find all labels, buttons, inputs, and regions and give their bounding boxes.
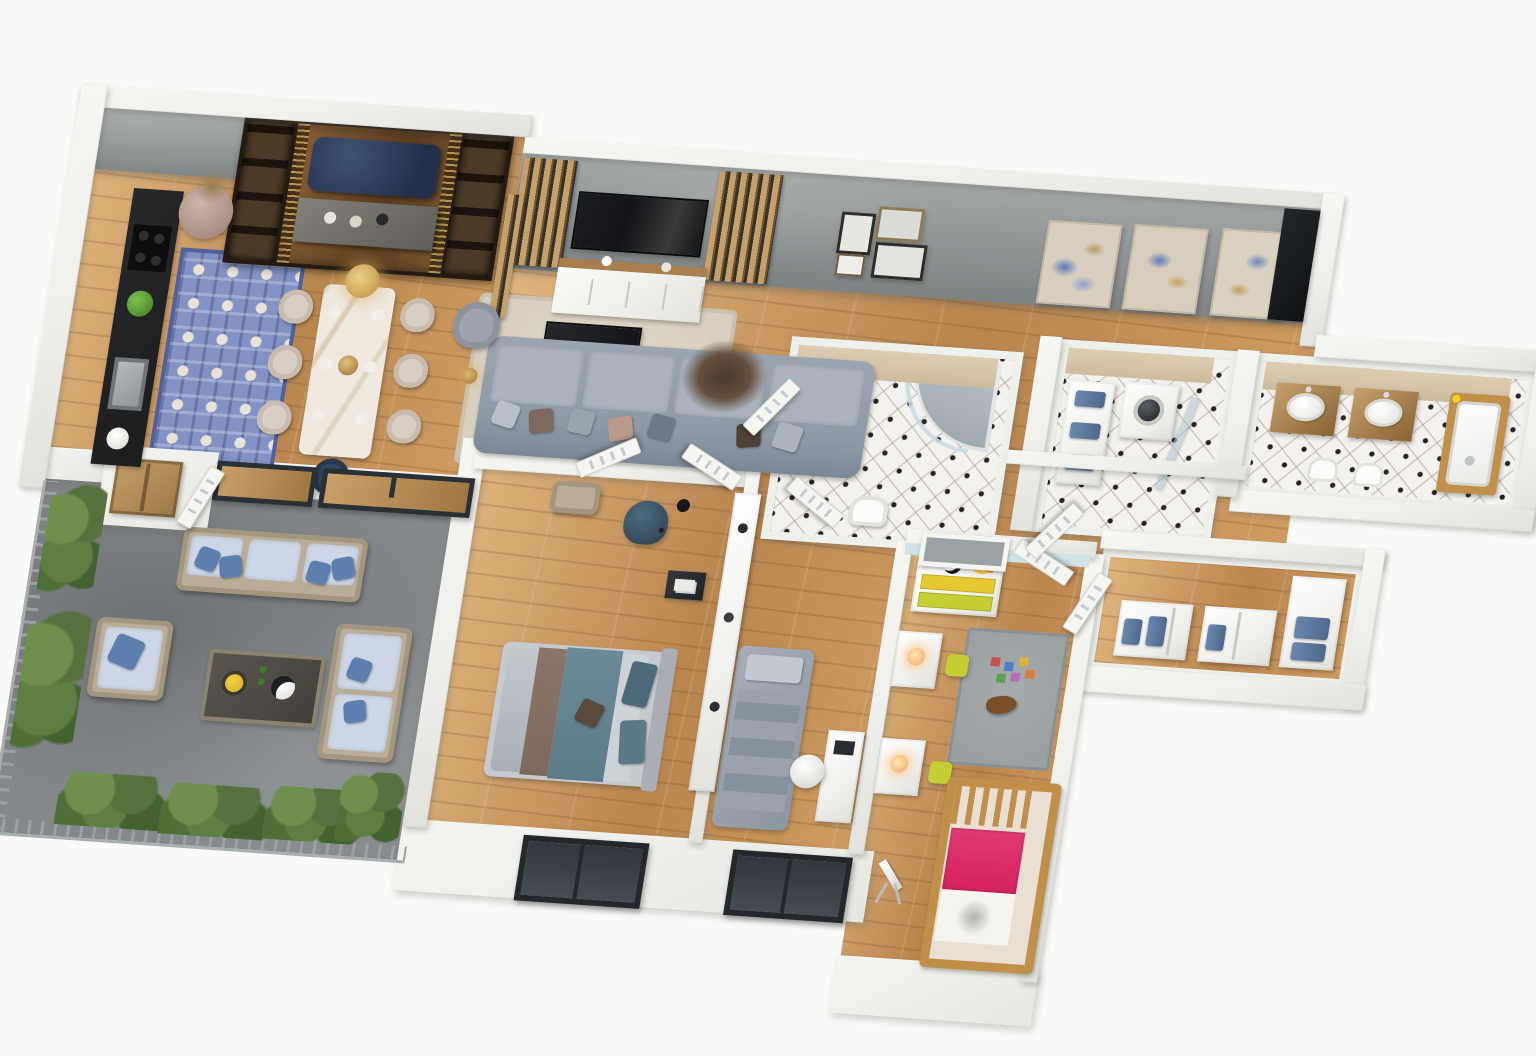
bathtub: [1436, 392, 1512, 495]
laundry-stone-wall: [1065, 348, 1215, 384]
blue-pillow: [343, 699, 366, 724]
master-bathroom: [1238, 353, 1536, 513]
wood-vanity: [1270, 382, 1342, 436]
drawer-yellow: [920, 574, 996, 594]
floor-plan-root: [0, 60, 1536, 1034]
sofa-cushion: [244, 539, 302, 582]
folded-towel: [1145, 616, 1168, 647]
photo-frame: [870, 242, 928, 281]
greens-bowl: [125, 290, 155, 318]
sofa-pillow: [771, 421, 805, 453]
blue-pillow: [219, 554, 242, 579]
bed-pillow: [618, 720, 647, 765]
fruit-bowl: [219, 669, 249, 697]
rocking-horse: [986, 694, 1017, 716]
walk-in-closet: [1085, 549, 1366, 688]
washing-machine: [1117, 382, 1180, 441]
sofa-seat: [581, 350, 676, 414]
master-double-bed: [483, 641, 676, 788]
faucet: [1305, 386, 1312, 392]
kitchen-corner-concrete-wall: [93, 106, 248, 180]
navy-bench: [306, 136, 442, 198]
blue-pillow: [331, 556, 356, 582]
lime-stool: [944, 654, 969, 677]
outdoor-armchair: [86, 617, 174, 702]
serving-tray: [269, 675, 297, 700]
corner-shrub: [333, 770, 408, 846]
media-sideboard: [551, 258, 707, 323]
foyer-media-wall: [222, 116, 515, 282]
sofa-pillow: [646, 413, 677, 442]
kids-desk: [873, 738, 926, 797]
white-bowl: [105, 427, 130, 450]
telescope: [870, 855, 918, 907]
kids-interior-window: [918, 532, 1011, 572]
closet-module: [1197, 606, 1278, 667]
folded-towel: [1121, 618, 1143, 645]
daybed-pillow: [744, 654, 804, 684]
photo-frame: [836, 211, 877, 255]
decor-vase: [601, 256, 613, 267]
hedge-plants: [54, 770, 172, 831]
pink-blanket: [942, 828, 1026, 895]
folded-towel: [1205, 624, 1227, 651]
wicker-bench: [549, 480, 602, 515]
shelf-divider: [1166, 607, 1177, 655]
folded-towel: [1069, 422, 1101, 440]
sofa-pillow: [529, 408, 554, 434]
outdoor-sofa: [175, 526, 369, 602]
kids-play-rug: [947, 627, 1070, 771]
magazines: [673, 579, 695, 592]
yellow-dresser: [910, 566, 1003, 618]
folded-towel: [1074, 390, 1106, 408]
sofa-pillow: [490, 399, 522, 429]
desk-lamp: [889, 754, 910, 773]
folded-towel: [1290, 642, 1327, 662]
abstract-painting: [1122, 224, 1209, 314]
corner-wardrobe: [1279, 576, 1347, 671]
wall-tv: [570, 191, 709, 258]
table-centerpiece: [337, 355, 360, 376]
dried-plant: [192, 168, 231, 204]
burner: [138, 230, 150, 241]
outdoor-coffee-table: [199, 648, 326, 727]
desk-monitor: [833, 740, 855, 755]
washer-door: [1132, 394, 1167, 426]
sliding-glass-door: [212, 461, 318, 508]
dresser-decor: [737, 523, 749, 534]
vessel-sink: [1285, 392, 1327, 422]
toy-blocks: [990, 657, 1000, 667]
wood-vanity: [1347, 388, 1419, 442]
side-table: [664, 570, 706, 600]
bench-divider: [139, 464, 151, 512]
drink-bottles: [259, 666, 267, 673]
desk-lamp: [906, 647, 927, 666]
sofa-seat: [490, 344, 585, 408]
kitchen-sink: [107, 357, 149, 411]
vessel-sink: [1362, 397, 1404, 427]
telescope-leg: [874, 882, 888, 903]
crib-rails: [950, 786, 1034, 829]
bidet: [1352, 462, 1386, 488]
sideboard-doors: [553, 277, 705, 313]
console-decor: [323, 211, 337, 224]
abstract-painting: [1036, 220, 1123, 308]
door-mullion: [389, 478, 397, 498]
master-window: [514, 835, 650, 909]
toilet: [847, 495, 890, 527]
folded-towel: [1293, 616, 1330, 640]
daybed-blanket: [720, 689, 803, 812]
kids-desk: [890, 630, 943, 689]
faucet: [1383, 392, 1390, 398]
place-settings: [327, 306, 341, 319]
storage-bench: [109, 458, 184, 518]
closet-module: [1113, 600, 1194, 661]
toilet: [1306, 457, 1340, 483]
photo-frame: [874, 206, 925, 243]
drawer-lime: [917, 592, 993, 612]
sofa-pillow: [566, 408, 596, 436]
guest-window: [723, 849, 853, 923]
white-sheet: [934, 889, 1016, 946]
cooktop: [127, 224, 172, 272]
photo-frame: [834, 253, 865, 277]
sofa-pillow: [607, 415, 633, 443]
hedge-plants: [157, 782, 275, 841]
shelf-divider: [1231, 612, 1242, 660]
tub-interior: [1445, 401, 1502, 487]
sheet-sketch: [953, 898, 995, 936]
